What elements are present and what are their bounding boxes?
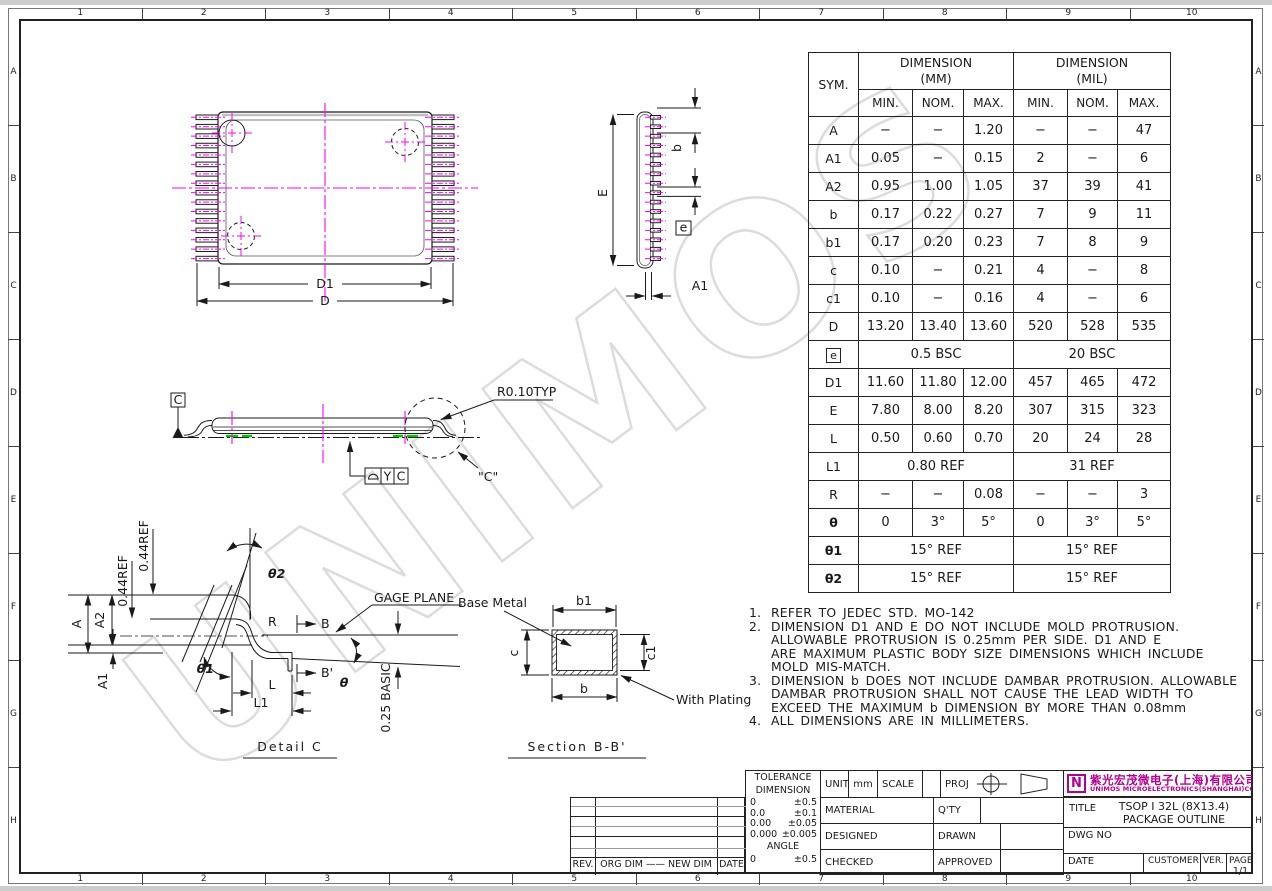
dim-label-a: A <box>69 619 84 628</box>
dim-table-cell: E <box>809 397 859 425</box>
dim-table-cell: θ <box>809 509 859 537</box>
dim-table-row: b0.170.220.277911 <box>809 201 1171 229</box>
col-header: MIN. <box>859 90 913 117</box>
dim-table-cell: 0.10 <box>859 257 913 285</box>
top-view: D1 D <box>172 103 478 308</box>
dim-table-cell: 24 <box>1068 425 1118 453</box>
dim-label-e: E <box>595 189 610 197</box>
tolerance-dim-label: DIMENSION <box>746 786 820 797</box>
dim-table-cell: 4 <box>1014 285 1068 313</box>
company-name-en: UNIMOS MICROELECTRONICS(SHANGHAI)CO.,LTD… <box>1090 786 1252 793</box>
dim-table-cell: 0.20 <box>913 229 964 257</box>
section-bb-title: Section B-B' <box>527 739 626 754</box>
ref-dim-label: 0.44REF <box>115 555 130 607</box>
dim-table-cell: 31 REF <box>1014 453 1171 481</box>
note-text: ALL DIMENSIONS ARE IN MILLIMETERS. <box>771 714 1029 728</box>
dim-table-cell: 2 <box>1014 145 1068 173</box>
dim-table-cell: 7 <box>1014 229 1068 257</box>
dim-table-cell: 6 <box>1118 145 1171 173</box>
dim-table-row: L10.80 REF31 REF <box>809 453 1171 481</box>
dim-table-cell: 28 <box>1118 425 1171 453</box>
dim-table-cell: 0.50 <box>859 425 913 453</box>
dim-table-cell: 307 <box>1014 397 1068 425</box>
dim-table-cell: 0.80 REF <box>859 453 1014 481</box>
tolerance-title: TOLERANCE <box>746 773 820 784</box>
third-angle-projection-icon <box>975 771 1053 797</box>
note-item: 1.REFER TO JEDEC STD. MO-142 <box>749 606 1237 620</box>
dim-label-l: L <box>269 677 276 692</box>
dim-table-row: c10.10−0.164−6 <box>809 285 1171 313</box>
dim-table-cell: 4 <box>1014 257 1068 285</box>
qty-label: Q'TY <box>933 797 981 824</box>
dim-table-cell: 0.21 <box>964 257 1014 285</box>
approved-label: APPROVED <box>933 849 1001 875</box>
note-item: 4.ALL DIMENSIONS ARE IN MILLIMETERS. <box>749 714 1237 728</box>
col-header: MIN. <box>1014 90 1068 117</box>
dim-table-cell: 1.05 <box>964 173 1014 201</box>
dim-table-cell: L1 <box>809 453 859 481</box>
dim-table-cell: − <box>859 481 913 509</box>
drawn-label: DRAWN <box>933 823 1001 850</box>
dim-table-cell: − <box>1068 145 1118 173</box>
unit-label: UNIT <box>820 770 849 798</box>
table-mil-header: DIMENSION(MIL) <box>1014 53 1171 90</box>
dim-table-cell: D <box>809 313 859 341</box>
radius-label: R0.10TYP <box>497 384 557 399</box>
dim-label-c: c <box>506 649 521 656</box>
dim-table-cell: 0.08 <box>964 481 1014 509</box>
drawing-title-line2: PACKAGE OUTLINE <box>1099 814 1249 827</box>
qty-value <box>980 797 1064 824</box>
dim-table-cell: 0.70 <box>964 425 1014 453</box>
designed-label: DESIGNED <box>820 823 934 850</box>
dim-table-cell: 13.20 <box>859 313 913 341</box>
table-sym-header: SYM. <box>809 53 859 117</box>
dim-table-cell: 15° REF <box>1014 537 1171 565</box>
dim-table-row: D111.6011.8012.00457465472 <box>809 369 1171 397</box>
dim-table-cell: 15° REF <box>859 537 1014 565</box>
rev-label: REV. <box>571 855 595 873</box>
page-cell: PAGE 1/1 <box>1226 853 1253 874</box>
dim-table-cell: − <box>1014 481 1068 509</box>
dim-table-cell: − <box>1014 117 1068 145</box>
scale-value <box>922 770 941 798</box>
gage-plane-label: GAGE PLANE <box>374 590 454 605</box>
dim-label-a1: A1 <box>692 278 709 293</box>
dim-table-cell: L <box>809 425 859 453</box>
dim-table-cell: b <box>809 201 859 229</box>
rev-date-label: DATE <box>717 855 746 873</box>
drawing-sheet: 12345678910 12345678910 ABCDEFGH ABCDEFG… <box>0 0 1272 891</box>
dim-table-cell: 37 <box>1014 173 1068 201</box>
dim-table-cell: 0.10 <box>859 285 913 313</box>
unit-value: mm <box>848 770 878 798</box>
dim-label-a1: A1 <box>95 673 110 690</box>
dim-table-cell: c1 <box>809 285 859 313</box>
dim-table-cell: 0.60 <box>913 425 964 453</box>
dim-table-cell: 528 <box>1068 313 1118 341</box>
dim-table-cell: 465 <box>1068 369 1118 397</box>
dim-table-cell: 0.27 <box>964 201 1014 229</box>
dim-table-cell: − <box>913 145 964 173</box>
dim-table-cell: 20 <box>1014 425 1068 453</box>
dim-table-cell: 0.15 <box>964 145 1014 173</box>
dim-table-cell: 12.00 <box>964 369 1014 397</box>
dim-label-theta: θ <box>340 675 349 690</box>
dim-table-cell: D1 <box>809 369 859 397</box>
tolerance-block: TOLERANCE DIMENSION 0±0.5 0.0±0.1 0.00±0… <box>745 770 821 874</box>
scale-label: SCALE <box>877 770 923 798</box>
section-b-label: B <box>321 616 330 631</box>
dim-table-cell: e <box>809 341 859 369</box>
unimos-logo-icon: N <box>1067 774 1086 793</box>
note-text: REFER TO JEDEC STD. MO-142 <box>771 606 975 620</box>
col-header: MAX. <box>964 90 1014 117</box>
ref-dim-label: 0.44REF <box>136 520 151 572</box>
dim-table-cell: 15° REF <box>859 565 1014 593</box>
dim-table-cell: A1 <box>809 145 859 173</box>
dim-label-b: b <box>669 144 684 152</box>
note-number: 3. <box>749 674 771 715</box>
detail-c-title: Detail C <box>257 739 323 754</box>
dim-table-row: θ115° REF15° REF <box>809 537 1171 565</box>
dim-table-row: θ215° REF15° REF <box>809 565 1171 593</box>
checked-label: CHECKED <box>820 849 934 875</box>
dim-table-cell: − <box>1068 481 1118 509</box>
dim-table-cell: 11.60 <box>859 369 913 397</box>
approved-value <box>1000 849 1064 875</box>
dim-table-cell: 0.5 BSC <box>859 341 1014 369</box>
dim-table-row: L0.500.600.70202428 <box>809 425 1171 453</box>
dim-table-cell: 13.60 <box>964 313 1014 341</box>
date-label: DATE <box>1063 853 1144 874</box>
basic-dim-label: 0.25 BASIC <box>378 663 393 733</box>
detail-c-callout-circle <box>405 398 465 458</box>
dim-table-cell: 7.80 <box>859 397 913 425</box>
dim-table-row: c0.10−0.214−8 <box>809 257 1171 285</box>
dim-table-cell: 315 <box>1068 397 1118 425</box>
dim-table-cell: 11.80 <box>913 369 964 397</box>
table-mm-header: DIMENSION(MM) <box>859 53 1014 90</box>
dim-table-cell: 7 <box>1014 201 1068 229</box>
dim-table-cell: 5° <box>1118 509 1171 537</box>
dim-table-cell: − <box>913 481 964 509</box>
dim-table-cell: A2 <box>809 173 859 201</box>
dim-table-cell: 8 <box>1118 257 1171 285</box>
dim-label-l1: L1 <box>254 695 269 710</box>
dim-table-cell: 0 <box>1014 509 1068 537</box>
company-logo-row: N 紫光宏茂微电子(上海)有限公司 UNIMOS MICROELECTRONIC… <box>1063 770 1253 797</box>
col-header: NOM. <box>913 90 964 117</box>
dim-table-cell: 9 <box>1118 229 1171 257</box>
col-header: MAX. <box>1118 90 1171 117</box>
dim-table-cell: 323 <box>1118 397 1171 425</box>
dim-label-a2: A2 <box>92 612 107 629</box>
dim-table-cell: 0 <box>859 509 913 537</box>
drawing-title-line1: TSOP I 32L (8X13.4) <box>1099 801 1249 814</box>
dim-table-cell: θ2 <box>809 565 859 593</box>
note-item: 3.DIMENSION b DOES NOT INCLUDE DAMBAR PR… <box>749 674 1237 715</box>
page-value: 1/1 <box>1229 866 1252 877</box>
dim-table-cell: − <box>1068 117 1118 145</box>
dim-table-cell: − <box>1068 285 1118 313</box>
dim-table-cell: 13.40 <box>913 313 964 341</box>
dim-label-d1: D1 <box>316 276 334 291</box>
dim-table-row: e0.5 BSC20 BSC <box>809 341 1171 369</box>
dimension-table: SYM. DIMENSION(MM) DIMENSION(MIL) MIN. N… <box>808 52 1171 593</box>
material-label: MATERIAL <box>820 797 934 824</box>
dim-table-cell: 0.17 <box>859 229 913 257</box>
title-label: TITLE <box>1069 803 1096 814</box>
dim-label-theta2: θ2 <box>268 566 285 581</box>
dim-table-cell: 0.16 <box>964 285 1014 313</box>
dim-table-cell: 41 <box>1118 173 1171 201</box>
profile-view: C R0.10TYP "C" Y <box>171 384 557 484</box>
dim-table-cell: A <box>809 117 859 145</box>
dim-label-d: D <box>320 293 330 308</box>
dimension-table-body: A−−1.20−−47A10.05−0.152−6A20.951.001.053… <box>809 117 1171 593</box>
note-number: 4. <box>749 714 771 728</box>
detail-c-ref-label: "C" <box>478 469 498 484</box>
dim-label-b: b <box>580 681 588 696</box>
side-view: E b e A1 <box>595 88 708 300</box>
proj-label: PROJ <box>945 779 969 790</box>
dim-table-cell: 5° <box>964 509 1014 537</box>
dim-table-cell: − <box>913 117 964 145</box>
lead-cross-section-base <box>557 635 613 671</box>
dim-table-cell: 9 <box>1068 201 1118 229</box>
dim-table-cell: 8.20 <box>964 397 1014 425</box>
note-text: DIMENSION b DOES NOT INCLUDE DAMBAR PROT… <box>771 674 1237 715</box>
dim-table-cell: 11 <box>1118 201 1171 229</box>
dim-table-cell: R <box>809 481 859 509</box>
dim-table-cell: 472 <box>1118 369 1171 397</box>
dim-table-cell: b1 <box>809 229 859 257</box>
dim-label-c1: c1 <box>643 646 658 661</box>
fcf-y-label: Y <box>383 469 392 484</box>
dim-table-row: D13.2013.4013.60520528535 <box>809 313 1171 341</box>
dim-table-row: A20.951.001.05373941 <box>809 173 1171 201</box>
dim-table-cell: 39 <box>1068 173 1118 201</box>
base-metal-label: Base Metal <box>458 595 527 610</box>
dim-table-row: A10.05−0.152−6 <box>809 145 1171 173</box>
dim-table-row: θ03°5°03°5° <box>809 509 1171 537</box>
tolerance-angle-label: ANGLE <box>746 842 820 853</box>
dim-table-cell: θ1 <box>809 537 859 565</box>
dim-table-cell: 3 <box>1118 481 1171 509</box>
page-label: PAGE <box>1229 856 1252 866</box>
dim-label-pitch-e: e <box>680 220 688 235</box>
dim-table-cell: 1.00 <box>913 173 964 201</box>
dim-table-cell: 457 <box>1014 369 1068 397</box>
col-header: NOM. <box>1068 90 1118 117</box>
dim-table-cell: 6 <box>1118 285 1171 313</box>
dim-table-cell: 1.20 <box>964 117 1014 145</box>
datum-c-label: C <box>174 392 183 407</box>
dim-table-cell: − <box>913 285 964 313</box>
dim-label-b1: b1 <box>576 593 592 608</box>
dim-table-cell: 3° <box>913 509 964 537</box>
note-number: 2. <box>749 620 771 674</box>
dim-label-theta1: θ1 <box>197 661 214 676</box>
rev-mid-label: ORG DIM —— NEW DIM <box>595 855 717 873</box>
dim-table-cell: 0.23 <box>964 229 1014 257</box>
dim-table-cell: 0.17 <box>859 201 913 229</box>
section-bb-view: b1 c c1 b Base Metal With Plating Sectio… <box>458 593 751 758</box>
dim-table-cell: − <box>1068 257 1118 285</box>
dwg-no-label: DWG NO <box>1063 827 1253 854</box>
dim-table-cell: 20 BSC <box>1014 341 1171 369</box>
note-text: DIMENSION D1 AND E DO NOT INCLUDE MOLD P… <box>771 620 1204 674</box>
seating-plane-symbol <box>369 474 379 479</box>
dim-table-cell: 47 <box>1118 117 1171 145</box>
ver-label: VER. <box>1200 853 1227 874</box>
dim-table-row: b10.170.200.23789 <box>809 229 1171 257</box>
customer-label: CUSTOMER <box>1143 853 1201 874</box>
projection-cell: PROJ <box>940 770 1064 798</box>
dim-table-row: R−−0.08−−3 <box>809 481 1171 509</box>
dim-table-cell: 15° REF <box>1014 565 1171 593</box>
dim-table-cell: 0.05 <box>859 145 913 173</box>
dim-table-cell: 8.00 <box>913 397 964 425</box>
dim-table-cell: c <box>809 257 859 285</box>
dim-table-cell: 0.95 <box>859 173 913 201</box>
dim-table-cell: − <box>913 257 964 285</box>
with-plating-label: With Plating <box>676 692 751 707</box>
dim-table-cell: 0.22 <box>913 201 964 229</box>
detail-c-view: B B' A A2 A1 0.44REF 0.44REF θ2 θ1 R <box>68 520 462 758</box>
revision-table: REV. ORG DIM —— NEW DIM DATE <box>570 797 745 874</box>
fcf-c-label: C <box>397 469 406 484</box>
dim-table-cell: 3° <box>1068 509 1118 537</box>
dim-table-row: A−−1.20−−47 <box>809 117 1171 145</box>
dim-table-cell: 520 <box>1014 313 1068 341</box>
side-view-pins <box>645 116 666 261</box>
dim-table-cell: 535 <box>1118 313 1171 341</box>
drawn-value <box>1000 823 1064 850</box>
dim-table-cell: − <box>859 117 913 145</box>
notes-list: 1.REFER TO JEDEC STD. MO-1422.DIMENSION … <box>749 606 1237 728</box>
datum-triangle <box>173 427 184 438</box>
note-item: 2.DIMENSION D1 AND E DO NOT INCLUDE MOLD… <box>749 620 1237 674</box>
dim-label-r: R <box>268 614 277 629</box>
drawing-title-cell: TITLE TSOP I 32L (8X13.4) PACKAGE OUTLIN… <box>1063 797 1253 828</box>
section-b-prime-label: B' <box>321 665 333 680</box>
note-number: 1. <box>749 606 771 620</box>
dim-table-cell: 8 <box>1068 229 1118 257</box>
dim-table-row: E7.808.008.20307315323 <box>809 397 1171 425</box>
